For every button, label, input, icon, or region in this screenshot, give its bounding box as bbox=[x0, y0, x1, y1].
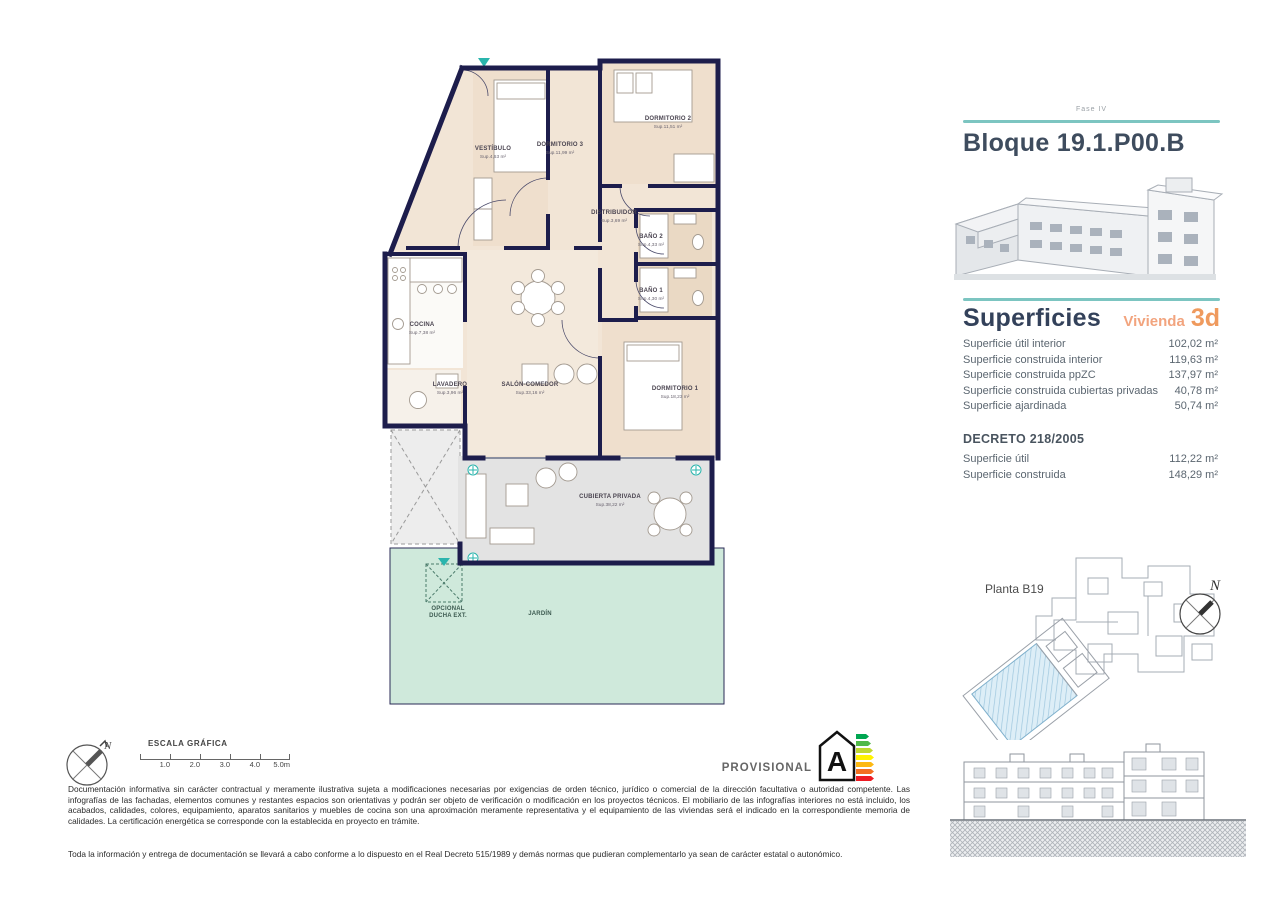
energy-rating-letter: A bbox=[827, 746, 847, 777]
fase-label: Fase IV bbox=[963, 106, 1220, 113]
table-row: Superficie construida ppZC137,97 m² bbox=[963, 368, 1218, 384]
decreto-heading: DECRETO 218/2005 bbox=[963, 432, 1218, 446]
room-label-cocina: COCINASup.7,38 m² bbox=[392, 322, 452, 337]
svg-text:N: N bbox=[103, 740, 112, 752]
table-row: Superficie útil interior102,02 m² bbox=[963, 337, 1218, 353]
table-row: Superficie construida cubiertas privadas… bbox=[963, 384, 1218, 400]
room-label-bano2: BAÑO 2Sup.4,33 m² bbox=[628, 234, 674, 249]
superficies-header: Superficies Vivienda 3d bbox=[963, 304, 1220, 333]
bloque-title: Bloque 19.1.P00.B bbox=[963, 129, 1223, 158]
accent-divider-top bbox=[963, 120, 1220, 123]
site-key-plan: N bbox=[948, 552, 1244, 745]
disclaimer-paragraph-2: Toda la información y entrega de documen… bbox=[68, 849, 910, 859]
svg-text:N: N bbox=[1209, 578, 1221, 594]
garden-area bbox=[390, 548, 724, 704]
floor-plan: VESTÍBULOSup.4,63 m² DORMITORIO 3Sup.11,… bbox=[378, 58, 726, 710]
floorplan-sheet: { "sidebar": { "fase": "Fase IV", "title… bbox=[0, 0, 1280, 905]
room-label-dormitorio2: DORMITORIO 2Sup.11,51 m² bbox=[625, 116, 711, 131]
room-label-cubierta: CUBIERTA PRIVADASup.38,22 m² bbox=[567, 494, 653, 509]
room-label-dormitorio3: DORMITORIO 3Sup.11,99 m² bbox=[517, 142, 603, 157]
room-label-jardin: JARDÍN bbox=[497, 611, 583, 618]
scale-bar bbox=[140, 753, 290, 760]
table-row: Superficie construida148,29 m² bbox=[963, 468, 1218, 484]
table-row: Superficie útil112,22 m² bbox=[963, 452, 1218, 468]
superficies-table: Superficie útil interior102,02 m² Superf… bbox=[963, 337, 1218, 415]
disclaimer-paragraph-1: Documentación informativa sin carácter c… bbox=[68, 784, 910, 826]
room-label-bano1: BAÑO 1Sup.4,30 m² bbox=[628, 288, 674, 303]
accent-divider-superficies bbox=[963, 298, 1220, 301]
superficies-heading: Superficies bbox=[963, 304, 1101, 333]
room-label-distribuidor: DISTRIBUIDORSup.3,69 m² bbox=[571, 210, 657, 225]
provisional-label: PROVISIONAL bbox=[690, 762, 812, 774]
table-row: Superficie construida interior119,63 m² bbox=[963, 353, 1218, 369]
building-render bbox=[948, 158, 1244, 303]
vivienda-code: 3d bbox=[1191, 304, 1220, 333]
vivienda-label: Vivienda bbox=[1123, 313, 1184, 333]
siteplan-compass-icon: N bbox=[1180, 578, 1221, 634]
pergola-area bbox=[391, 430, 460, 544]
room-label-ducha: OPCIONAL DUCHA EXT. bbox=[418, 606, 478, 620]
scale-label: ESCALA GRÁFICA bbox=[148, 739, 228, 748]
building-elevation bbox=[950, 740, 1246, 867]
room-label-lavadero: LAVADEROSup.3,96 m² bbox=[420, 382, 480, 397]
scale-numbers: 1.0 2.0 3.0 4.0 5.0m bbox=[140, 760, 290, 769]
energy-rating-icon: A bbox=[816, 728, 874, 791]
room-label-dormitorio1: DORMITORIO 1Sup.18,23 m² bbox=[632, 386, 718, 401]
room-label-salon: SALÓN-COMEDORSup.33,16 m² bbox=[487, 382, 573, 397]
decreto-section: DECRETO 218/2005 Superficie útil112,22 m… bbox=[963, 432, 1218, 483]
table-row: Superficie ajardinada50,74 m² bbox=[963, 399, 1218, 415]
